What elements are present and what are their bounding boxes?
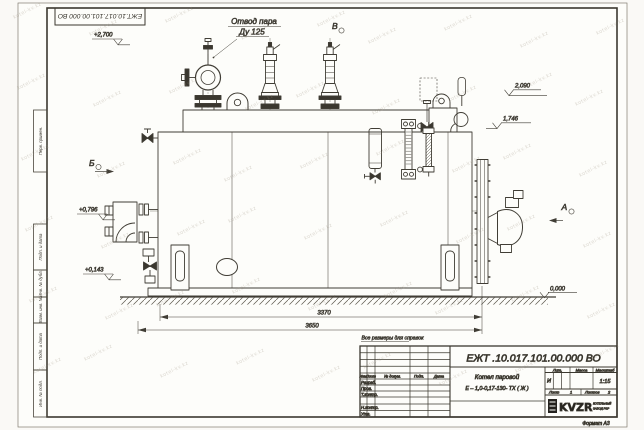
sheet-label: Лист: [548, 390, 560, 395]
manhole: [217, 259, 238, 276]
technical-drawing: Перв. примен. Подп. и дата Инв. № дубл. …: [0, 0, 644, 430]
company-sub2: ЗАВОД РЗР: [593, 407, 609, 411]
sheets-label: Листов: [584, 390, 600, 395]
boiler-body: [158, 132, 472, 288]
skid-rail: [148, 288, 472, 296]
callout-dn125: Ду 125: [238, 28, 265, 37]
row-razrab: Разраб.: [361, 380, 376, 385]
svg-text:0,000: 0,000: [550, 287, 566, 293]
col-doc: № докум.: [384, 374, 401, 378]
corner-doc-number: ЕЖТ.10.017.101.00.000 ВО: [57, 12, 142, 19]
format-label: Формат А3: [582, 421, 610, 427]
support-left: [171, 245, 189, 290]
product-designation: Е – 1,0-0,17-130- ТХ ( Ж ): [465, 386, 529, 392]
company-logo-icon: [548, 399, 557, 413]
lit-value: И: [547, 379, 551, 385]
scale-label: Масштаб: [596, 367, 615, 372]
row-utv: Утв.: [361, 411, 371, 416]
drawing-sheet: Перв. примен. Подп. и дата Инв. № дубл. …: [0, 0, 644, 430]
col-podp: Подп.: [414, 374, 424, 378]
margin-label-perv-primen: Перв. примен.: [38, 127, 43, 156]
company-name: KVZR: [559, 401, 593, 414]
titleblock-doc-number: ЕЖТ .10.017.101.00.000 ВО: [466, 353, 600, 365]
margin-label-inv-podl: Инв. № подл.: [38, 380, 43, 407]
lifting-lug-left: [227, 93, 248, 110]
svg-text:В: В: [332, 21, 338, 31]
callout-steam-outlet: Отвод пара: [231, 17, 277, 26]
svg-text:Все размеры для справок: Все размеры для справок: [362, 336, 425, 342]
margin-label-podp-data-2: Подп. и дата: [38, 332, 43, 360]
ground-hatch: [120, 298, 548, 305]
row-nkontr: Н.контр.: [361, 405, 379, 410]
mass-label: Масса: [576, 367, 589, 372]
col-data: Дата: [433, 374, 444, 378]
reference-note: Все размеры для справок: [361, 336, 424, 342]
scale-value: 1:15: [600, 379, 612, 385]
row-prov: Пров.: [361, 386, 372, 391]
margin-label-podp-data-1: Подп. и дата: [38, 233, 43, 261]
svg-text:3370: 3370: [317, 311, 331, 317]
svg-text:А: А: [561, 202, 568, 212]
svg-text:Б: Б: [89, 158, 95, 168]
col-list: Лист: [365, 374, 376, 378]
sheet-value: 1: [570, 390, 572, 395]
margin-label-inv-dubl: Инв. № дубл.: [38, 270, 43, 296]
row-tkontr: Т.контр.: [361, 392, 378, 397]
margin-label-vzam-inv: Взам. инв. №: [38, 296, 43, 323]
svg-text:1,746: 1,746: [503, 117, 519, 123]
svg-text:+0,796: +0,796: [79, 208, 98, 214]
svg-text:+0,143: +0,143: [85, 268, 104, 274]
svg-text:3650: 3650: [305, 324, 319, 330]
support-right: [441, 245, 459, 290]
svg-text:2,090: 2,090: [514, 84, 531, 90]
lit-label: Лит.: [552, 367, 562, 372]
svg-text:+2,700: +2,700: [94, 33, 113, 39]
product-name: Котел паровой: [475, 374, 520, 381]
company-sub1: КОТЕЛЬНЫЙ: [593, 402, 612, 406]
